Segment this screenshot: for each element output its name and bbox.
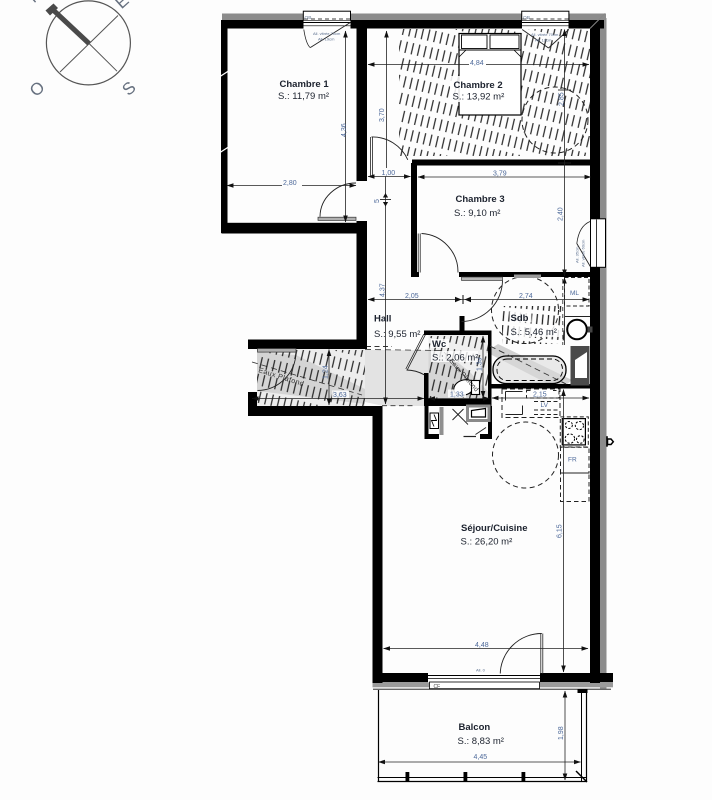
svg-text:OB: OB xyxy=(523,15,530,21)
svg-text:S: S xyxy=(118,78,139,100)
svg-text:S.: 9,55 m²: S.: 9,55 m² xyxy=(374,329,420,340)
svg-text:1,00: 1,00 xyxy=(382,170,396,177)
svg-text:Chambre 2: Chambre 2 xyxy=(454,80,503,91)
svg-text:S.: 11,79 m²: S.: 11,79 m² xyxy=(278,91,329,102)
svg-text:Sdb: Sdb xyxy=(511,313,529,324)
svg-text:6,15: 6,15 xyxy=(557,524,564,538)
svg-text:2,15: 2,15 xyxy=(533,392,547,399)
svg-text:Chambre 3: Chambre 3 xyxy=(456,194,505,205)
svg-text:All. 19cm: All. 19cm xyxy=(535,38,552,43)
svg-text:O: O xyxy=(26,77,49,100)
svg-text:3,70: 3,70 xyxy=(379,108,386,122)
svg-text:1,98: 1,98 xyxy=(558,726,565,740)
svg-text:S.: 8,83 m²: S.: 8,83 m² xyxy=(458,736,504,747)
svg-text:Wc: Wc xyxy=(432,339,446,350)
svg-text:CF: CF xyxy=(434,684,441,690)
svg-text:All. 0: All. 0 xyxy=(476,668,486,673)
svg-text:All. 19cm: All. 19cm xyxy=(318,37,335,42)
svg-text:N: N xyxy=(24,0,46,6)
svg-text:S.: 5,46 m²: S.: 5,46 m² xyxy=(511,327,557,338)
svg-text:2,05: 2,05 xyxy=(405,293,419,300)
svg-text:Balcon: Balcon xyxy=(459,722,491,733)
svg-text:4,36: 4,36 xyxy=(341,123,348,137)
svg-text:4,48: 4,48 xyxy=(475,642,489,649)
svg-text:3,79: 3,79 xyxy=(493,171,507,178)
svg-text:All. vitrée 70cm: All. vitrée 70cm xyxy=(313,31,341,36)
svg-text:ML: ML xyxy=(570,290,579,297)
svg-text:2,40: 2,40 xyxy=(558,207,565,221)
svg-text:3,63: 3,63 xyxy=(333,392,347,399)
svg-text:Séjour/Cuisine: Séjour/Cuisine xyxy=(461,523,528,534)
svg-text:4,45: 4,45 xyxy=(474,754,488,761)
svg-text:All. vitrée 60cm: All. vitrée 60cm xyxy=(581,239,586,267)
svg-text:OB: OB xyxy=(305,15,312,21)
svg-text:Hall: Hall xyxy=(374,314,391,325)
svg-text:FR: FR xyxy=(568,457,577,464)
svg-text:LV: LV xyxy=(541,402,549,409)
svg-text:1,33: 1,33 xyxy=(450,392,464,399)
svg-text:Chambre 1: Chambre 1 xyxy=(280,79,330,90)
svg-text:5: 5 xyxy=(374,199,381,203)
svg-text:2,80: 2,80 xyxy=(283,180,297,187)
svg-text:S.: 26,20 m²: S.: 26,20 m² xyxy=(461,537,513,548)
svg-text:2,74: 2,74 xyxy=(519,293,533,300)
svg-text:S.: 13,92 m²: S.: 13,92 m² xyxy=(453,92,505,103)
svg-text:4,84: 4,84 xyxy=(470,60,484,67)
svg-text:4,37: 4,37 xyxy=(380,283,387,297)
svg-text:All. 35cm: All. 35cm xyxy=(575,246,580,263)
svg-text:1,24: 1,24 xyxy=(323,365,330,379)
svg-text:S.: 9,10 m²: S.: 9,10 m² xyxy=(454,208,500,219)
svg-text:All. vitrée 70cm: All. vitrée 70cm xyxy=(531,32,559,37)
svg-text:2,85: 2,85 xyxy=(559,92,566,106)
